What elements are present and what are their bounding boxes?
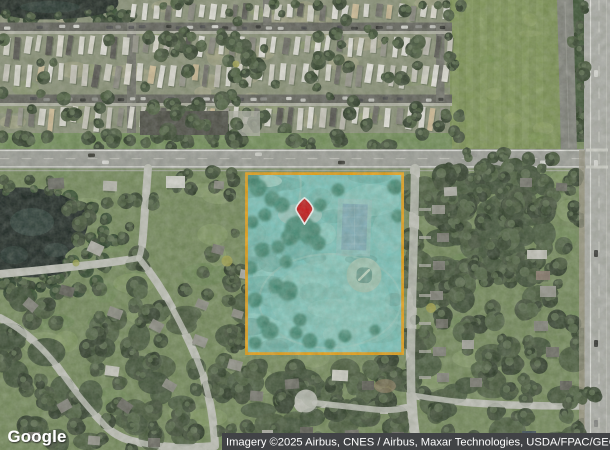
svg-text:Google: Google — [8, 427, 67, 446]
svg-text:Imagery ©2025 Airbus, CNES / A: Imagery ©2025 Airbus, CNES / Airbus, Max… — [226, 437, 610, 449]
